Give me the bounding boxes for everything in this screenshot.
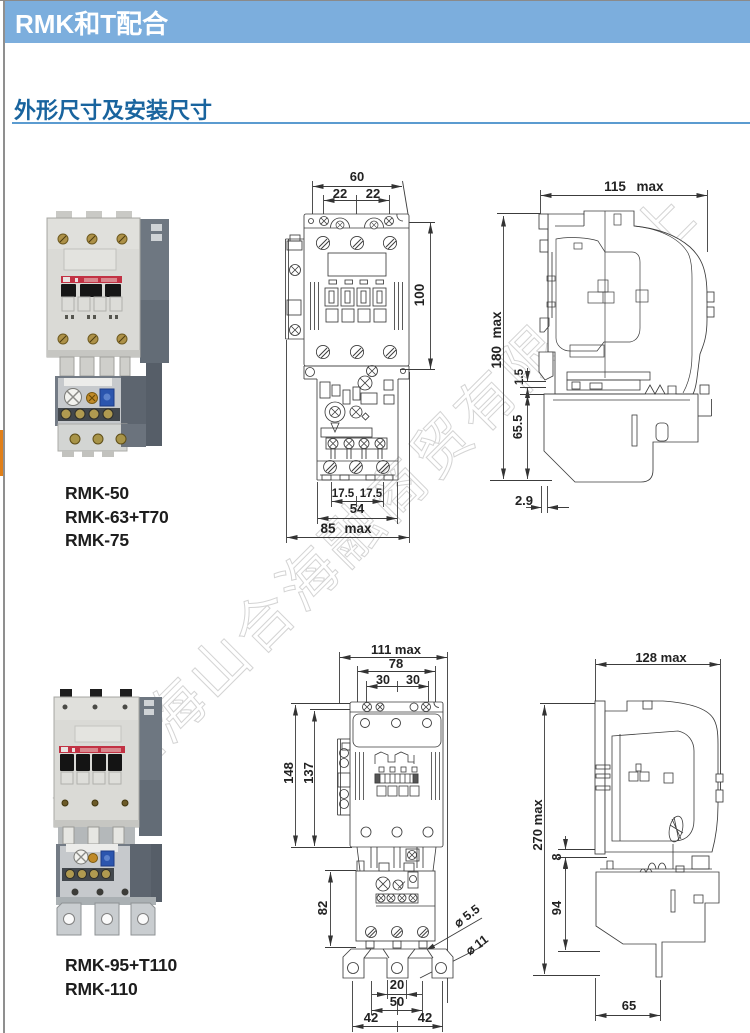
svg-text:85: 85	[320, 521, 336, 536]
svg-text:⌀ 5.5: ⌀ 5.5	[451, 902, 482, 930]
svg-text:54: 54	[350, 501, 365, 516]
svg-text:100: 100	[412, 284, 427, 307]
svg-text:17.5: 17.5	[332, 488, 355, 500]
svg-text:111 max: 111 max	[371, 642, 422, 657]
svg-text:8: 8	[550, 853, 564, 860]
svg-text:148: 148	[282, 762, 296, 784]
svg-text:65: 65	[622, 998, 636, 1013]
svg-text:20: 20	[390, 977, 404, 992]
svg-text:max: max	[344, 521, 372, 536]
svg-text:22: 22	[366, 186, 380, 201]
svg-text:60: 60	[350, 169, 364, 184]
svg-text:78: 78	[389, 656, 403, 671]
svg-text:50: 50	[390, 994, 404, 1009]
svg-text:82: 82	[315, 901, 330, 915]
svg-text:42: 42	[364, 1010, 378, 1025]
svg-text:137: 137	[301, 762, 316, 784]
svg-text:65.5: 65.5	[511, 415, 525, 439]
svg-text:30: 30	[376, 673, 390, 687]
svg-text:2.9: 2.9	[515, 493, 533, 508]
svg-text:30: 30	[406, 673, 420, 687]
svg-text:180 max: 180 max	[489, 311, 504, 369]
svg-text:270 max: 270 max	[530, 799, 545, 851]
svg-text:42: 42	[418, 1010, 432, 1025]
svg-text:max: max	[636, 179, 664, 194]
svg-text:128 max: 128 max	[635, 650, 687, 665]
svg-text:17.5: 17.5	[360, 488, 383, 500]
svg-text:1.5: 1.5	[514, 368, 526, 385]
svg-text:22: 22	[333, 186, 347, 201]
svg-text:94: 94	[549, 900, 564, 915]
svg-text:115: 115	[604, 179, 626, 194]
